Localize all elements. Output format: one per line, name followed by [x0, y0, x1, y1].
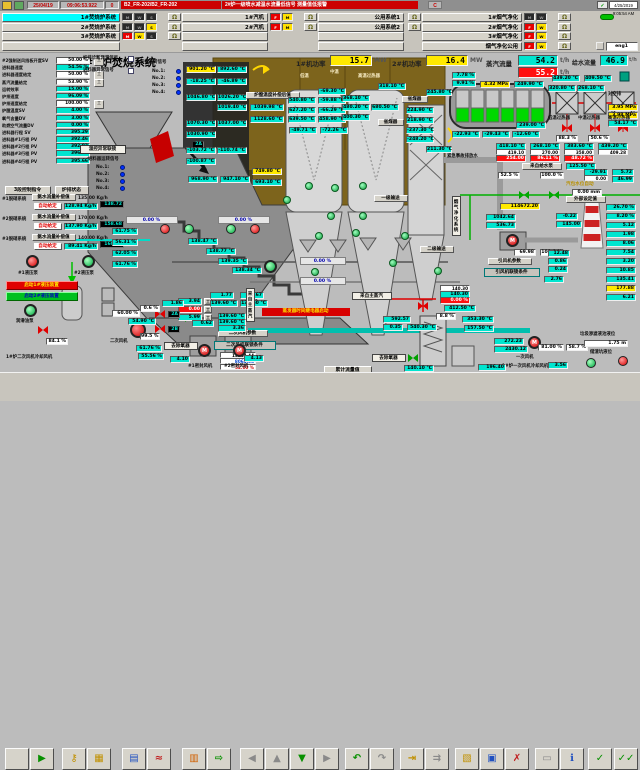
label: 高温过热器 [358, 74, 381, 81]
value-box: 211.30 ℃ [426, 146, 452, 153]
alarm-led: F [524, 32, 535, 40]
report-button[interactable]: ▤ [122, 748, 146, 770]
value-box: 4.10 [170, 356, 190, 363]
value-box: 1046.80 ℃ [186, 94, 216, 101]
parameter-row: 炉排速度给定 100.00 % 工 [2, 100, 112, 107]
value-box: 6.21 [606, 294, 636, 301]
bell-icon[interactable]: Ω [304, 23, 317, 31]
run-led [120, 179, 125, 184]
nav-1-fluegas[interactable]: 1#烟气净化 [422, 13, 522, 22]
value-box[interactable]: 0.6 % [140, 305, 160, 312]
app-icon[interactable] [2, 1, 12, 10]
delete-screen-button[interactable]: ✗ [505, 748, 529, 770]
value-box: 409.28 [598, 149, 628, 155]
parameter-label: 运转效率 [2, 87, 19, 93]
user-field[interactable]: eng1 [606, 42, 638, 51]
alarm-led: M [122, 23, 133, 31]
label: 汽包水位自动 [566, 182, 595, 189]
checkbox[interactable] [128, 56, 134, 62]
alarm-confirm-button[interactable]: ✓✓ [614, 748, 638, 770]
value-box: 540.30 ℃ [407, 324, 437, 331]
value-box: 3.36 [218, 325, 246, 332]
conveyor-label: 二级输送 [420, 246, 454, 253]
label-box: 氨水流量补偿值 [32, 194, 76, 201]
motor-icon[interactable] [305, 182, 313, 190]
pump-icon[interactable] [250, 224, 260, 234]
label: 二次风机 [110, 339, 128, 346]
value-box: 540.80 ℃ [288, 97, 316, 104]
alarm-led: W [134, 32, 145, 40]
alarm-message: 2#炉一级喷水减温水流量低信号 测量值低报警 [222, 1, 418, 9]
slider[interactable]: 0.00 % [218, 216, 270, 224]
run-led [176, 83, 181, 88]
alarm-led: W [536, 23, 547, 31]
label: #1液压泵 [18, 271, 38, 278]
nav-empty[interactable] [182, 42, 268, 51]
bell-icon[interactable]: Ω [168, 32, 181, 40]
parameter-row: 助燃空气流量DV 0.00 % [2, 122, 112, 129]
screen-forward-button[interactable]: ⇉ [425, 748, 449, 770]
value-box: 245.80 ℃ [426, 89, 452, 96]
value-box: 0.00 % [440, 297, 470, 304]
parameter-label: 进料器#1行程 PV [2, 137, 37, 143]
nav-2-turbine[interactable]: 2#汽机 [182, 23, 268, 32]
parameter-label: 氧气含量DV [2, 116, 25, 122]
label-box: 氨水流量补偿值 [32, 214, 76, 221]
nav-2-fluegas[interactable]: 2#烟气净化 [422, 23, 522, 32]
value-box: 480.20 ℃ [342, 104, 370, 111]
value-box: 1.77 [210, 292, 234, 299]
value-box: 968.90 ℃ [188, 176, 218, 183]
value-box: 1128.60 ℃ [250, 116, 284, 123]
value-box: -22.93 ℃ [452, 131, 480, 138]
value-box: 0.62 [192, 320, 214, 327]
value-box: 353.30 ℃ [462, 316, 494, 323]
value-box: 0.00 [584, 175, 608, 181]
value-box[interactable]: 81.00 % [538, 344, 564, 351]
value-box: 268.10 ℃ [577, 85, 605, 92]
value-box: 318.10 ℃ [378, 83, 406, 90]
value-box: 2430.12 [494, 346, 528, 353]
run-led [120, 165, 125, 170]
pump-icon[interactable] [226, 224, 236, 234]
flow-label: 来自给水泵 [522, 163, 562, 170]
motor-icon[interactable] [359, 182, 367, 190]
label: No.2: [152, 76, 165, 83]
value-box: -69.30 ℃ [318, 88, 346, 95]
alarm-led: W [134, 13, 145, 21]
parameter-label: 进料器速度给定 [2, 72, 31, 78]
label: No.4: [96, 186, 109, 193]
pump-icon[interactable] [24, 304, 37, 317]
value-box: 26.70 % [606, 204, 636, 211]
feed-flow-value: 46.9 [600, 55, 628, 66]
value-box: 4.32 MPa [480, 81, 510, 88]
parameter-row: 进料器行程 SV 395.29 [2, 129, 112, 136]
label: 润滑油泵 [16, 319, 34, 326]
value-box: 12.48 [548, 250, 570, 257]
label: No.3: [152, 83, 165, 90]
run-led [176, 76, 181, 81]
value-box: 1026.20 ℃ [217, 94, 247, 101]
label: 低温过热器 [548, 116, 570, 123]
bell-icon[interactable]: Ω [558, 42, 571, 50]
value-box: 5.12 [606, 222, 636, 229]
vertical-label: 来自主蒸汽 [246, 288, 255, 322]
parameter-value: 395.29 [56, 129, 90, 136]
label: 一次风机 [516, 355, 534, 362]
alarm-led: W [134, 23, 145, 31]
alarm-led: M [524, 13, 535, 21]
value-box: 368.10 ℃ [342, 95, 370, 102]
motor-icon[interactable] [389, 259, 397, 267]
parameter-label: 进料器#4行程 PV [2, 159, 37, 165]
value-box: 947.10 ℃ [220, 176, 250, 183]
idfan-interlock-button[interactable]: 引风机联锁条件 [484, 268, 540, 277]
run-led [176, 69, 181, 74]
parameter-value: 53.90 % [56, 79, 90, 86]
conveyor-label: 一级输送 [374, 195, 408, 202]
checkbox[interactable] [128, 68, 134, 74]
steam-flow-value: 54.2 [518, 55, 558, 66]
indicator-icon[interactable] [586, 358, 596, 368]
idfan-params-button[interactable]: 引风机参数 [488, 258, 532, 265]
value-box: 55.56 % [138, 353, 164, 360]
bell-icon[interactable]: Ω [168, 13, 181, 21]
bell-icon[interactable]: Ω [408, 23, 421, 31]
indicator-icon[interactable] [618, 356, 628, 366]
value-box: 61.76 % [136, 345, 162, 352]
user-icon [596, 42, 604, 50]
nav-1-turbine[interactable]: 1#汽机 [182, 13, 268, 22]
auto-setpoint-button[interactable]: 自动给定 [34, 243, 62, 250]
bell-icon[interactable]: Ω [558, 13, 571, 21]
value-box: -103.72 ℃ [186, 147, 216, 154]
alarm-banner: 蒸发器时间继电器启动 [262, 308, 350, 316]
value-box: 0.00 [178, 306, 202, 313]
blank-button[interactable] [5, 748, 29, 770]
parameter-label: 进料器#2行程 PV [2, 144, 37, 150]
value-box: 2.76 [544, 276, 564, 283]
label: No.4: [152, 90, 165, 97]
bell-icon[interactable]: Ω [304, 13, 317, 21]
value-box: -18.25 ℃ [186, 78, 216, 85]
parameter-row: 炉膛温度SV 4.00 % [2, 107, 112, 114]
tag-status-button[interactable]: ▥ [182, 748, 206, 770]
label: 低温 [300, 74, 310, 81]
value-box: 196.40 [478, 364, 506, 371]
run-led [120, 172, 125, 177]
flow-label: 来自主蒸汽 [352, 292, 392, 300]
alarm-count: 0 [105, 1, 119, 9]
nav-left-button[interactable]: ◀ [240, 748, 264, 770]
label: 中温 [330, 70, 340, 77]
flow-label: 去除氧器 [164, 342, 198, 350]
label: #2脱硝系统 [2, 217, 26, 224]
nav-right-button[interactable]: ▶ [315, 748, 339, 770]
bell-icon[interactable]: Ω [408, 13, 421, 21]
value-box: 3.20 [606, 258, 636, 265]
value-box[interactable]: 52.5 % [498, 172, 520, 179]
value-box: 61.75 % [112, 228, 138, 235]
refresh-icon[interactable] [14, 1, 24, 10]
value-box: 177.88 [606, 285, 636, 292]
trend-button[interactable]: ≈ [147, 748, 171, 770]
value-box: 158.68 [100, 221, 124, 228]
value-box[interactable]: 60.00 % [112, 310, 140, 317]
label: 炉排诊断异常信号 [83, 56, 118, 63]
parameter-label: 进料器行程 SV [2, 130, 31, 136]
parameter-label: 助燃空气流量DV [2, 123, 34, 129]
slider[interactable]: 0.00 % [300, 257, 346, 265]
parameter-row: 蒸汽流量给定 53.90 % 工 [2, 79, 112, 86]
metric-label: 给水流量 [572, 58, 596, 67]
nav-fluegas-common[interactable]: 烟气净化公用 [422, 42, 522, 51]
parameter-row: 进料器#1行程 PV 392.46 [2, 136, 112, 143]
value-box: -46.89 ℃ [217, 78, 247, 85]
nav-down-button[interactable]: ▼ [290, 748, 314, 770]
motor-icon[interactable] [315, 232, 323, 240]
parameter-label: 蒸汽流量给定 [2, 80, 27, 86]
label: 1#炉一次风机冷却风机 [502, 364, 548, 371]
ack-datetime: 4/25/2019 9:05:54 AM [609, 1, 638, 9]
value-box[interactable]: 69.98 [514, 249, 536, 256]
parameter-row: 氧气含量DV 3.00 % [2, 115, 112, 122]
value-box: 0.24 [548, 266, 568, 273]
value-box: 89.41 Kg/h [64, 243, 98, 250]
value-box: -0.22 [556, 213, 578, 220]
label: 储渣坑液位 [590, 350, 612, 357]
label: 进料器异常信号 [83, 68, 114, 75]
parameter-value: 392.46 [56, 136, 90, 143]
screen-transfer-button[interactable]: ⇨ [207, 748, 231, 770]
label: 高温过热器 [608, 116, 630, 123]
slider[interactable]: 0.00 % [300, 277, 346, 285]
parameter-value: 15.00 % [56, 86, 90, 93]
value-box: 48.72 % [564, 155, 594, 162]
pump-icon[interactable] [184, 224, 194, 234]
value-box: 1030.90 ℃ [186, 131, 216, 138]
pump-icon[interactable] [160, 224, 170, 234]
value-box: 224.90 ℃ [406, 107, 434, 114]
motor-icon[interactable] [401, 232, 409, 240]
value-box: 320.80 ℃ [548, 85, 576, 92]
nav-common-2[interactable]: 公用系统2 [318, 23, 404, 32]
value-box: -49.71 ℃ [289, 127, 317, 134]
value-box: -29.43 ℃ [482, 131, 510, 138]
metric-label: 2#机功率 [392, 58, 421, 68]
label-box: 省煤器 [378, 119, 404, 126]
value-box: 139.60 ℃ [210, 300, 238, 307]
value-box: 627.20 ℃ [288, 107, 316, 114]
value-box: -12.60 ℃ [512, 131, 540, 138]
flow-label: 去除氧器 [372, 354, 406, 362]
value-box: 536.73 [486, 222, 516, 229]
label: No.2: [96, 172, 109, 179]
nav-common-1[interactable]: 公用系统1 [318, 13, 404, 22]
nav-empty[interactable] [318, 32, 404, 41]
value-box: 249.90 ℃ [514, 81, 544, 88]
flow-label: 对空排 [608, 92, 634, 99]
runtime-start-button[interactable]: ▶ [30, 748, 54, 770]
pump-icon[interactable] [82, 255, 95, 268]
fan-icon[interactable]: M [198, 344, 211, 357]
value-box: 3.56 [548, 362, 568, 369]
label: #1脱硝系统 [2, 197, 26, 204]
value-box: 138.34 ℃ [232, 267, 262, 274]
motor-icon[interactable] [327, 212, 335, 220]
value-box: 138.72 [100, 201, 124, 208]
redo-button[interactable]: ↷ [370, 748, 394, 770]
value-box[interactable]: 50.6 % [588, 135, 610, 142]
value-box: 1019.40 ℃ [217, 104, 247, 111]
value-box[interactable]: 99.5 % [140, 333, 160, 340]
display-toggle-button[interactable]: ▭ [535, 748, 559, 770]
motor-icon[interactable] [359, 212, 367, 220]
value-box[interactable]: 84.1 % [46, 338, 68, 345]
value-box[interactable]: 100.0 % [540, 172, 564, 179]
auto-setpoint-button[interactable]: 自动给定 [34, 203, 62, 210]
motor-icon[interactable] [283, 196, 291, 204]
value-box: 62.05 % [112, 250, 138, 257]
value-box: 239.00 ℃ [516, 122, 546, 129]
value-box: 157.50 ℃ [464, 325, 494, 332]
label: No.1: [152, 69, 165, 76]
parameter-row: 运转效率 15.00 % [2, 86, 112, 93]
bell-icon[interactable]: Ω [558, 23, 571, 31]
bell-icon[interactable]: Ω [558, 32, 571, 40]
alarm-led: W [536, 13, 547, 21]
label: #1密封风机 [188, 364, 212, 371]
value-box: 1042.64 [486, 214, 516, 221]
label-box: 外部设定值 [566, 196, 606, 203]
tag: 2A [168, 311, 180, 318]
parameter-label: 进料器速度 [2, 65, 23, 71]
label: #2密封风机 [224, 364, 248, 371]
label: No.1: [96, 165, 109, 172]
undo-button[interactable]: ↶ [345, 748, 369, 770]
alarm-ack-button[interactable]: ✓ [588, 748, 612, 770]
value-box: -110.74 ℃ [217, 147, 247, 154]
nav-3-fluegas[interactable]: 3#烟气净化 [422, 32, 522, 41]
fan-icon[interactable]: M [506, 234, 519, 247]
metric-unit: MW [374, 57, 387, 64]
value-box: 218.90 ℃ [406, 117, 434, 124]
start-hydraulic-1-button[interactable]: 启动1#液压装置 [6, 281, 78, 290]
value-box: 639.50 ℃ [288, 116, 316, 123]
value-box: 10.85 [606, 267, 636, 274]
alarm-led: S [146, 32, 157, 40]
value-box: 46.99 [612, 176, 634, 183]
motor-icon[interactable] [311, 268, 319, 276]
graphics-screen-button[interactable]: ▦ [87, 748, 111, 770]
value-box: 5.72 [612, 169, 634, 176]
slider[interactable]: 0.00 % [126, 216, 178, 224]
nav-3-incinerator[interactable]: 3#焚烧炉系统 [2, 32, 120, 41]
value-box[interactable]: 8.8 % [436, 313, 456, 320]
value-box: 56.31 % [112, 239, 138, 246]
bell-icon[interactable]: Ω [168, 23, 181, 31]
alarm-led: W [536, 42, 547, 50]
metric-unit: t/h [560, 57, 569, 64]
alarm-led: M [282, 13, 293, 21]
label: 中温过热器 [578, 116, 600, 123]
alarm-flag: C [428, 1, 442, 9]
nav-empty[interactable] [2, 42, 120, 51]
parameter-value: 100.00 % [56, 100, 90, 107]
save-screen-button[interactable]: ▣ [480, 748, 504, 770]
value-box: 61.76 % [112, 261, 138, 268]
security-keys-button[interactable]: ⚷ [62, 748, 86, 770]
valve-icon[interactable] [264, 260, 277, 273]
parameter-label: #2强制送风挡板开度SV [2, 58, 48, 64]
value-box: 1.86 [162, 300, 184, 307]
value-box: 145.00 [556, 221, 582, 228]
value-box[interactable]: 88.3 % [556, 135, 578, 142]
value-box: -100.87 ℃ [186, 158, 216, 165]
value-box: 138.77 ℃ [206, 248, 236, 255]
nav-empty[interactable] [318, 42, 404, 51]
value-box: 7.78 % [452, 72, 476, 79]
label: No.3: [96, 179, 109, 186]
motor-icon[interactable] [331, 184, 339, 192]
open-screen-button[interactable]: ▧ [455, 748, 479, 770]
label: #2液压泵 [74, 271, 94, 278]
value-box: 8.20 % [606, 213, 636, 220]
value-box: 139.35 ℃ [218, 258, 248, 265]
value-box: -237.30 ℃ [406, 127, 434, 134]
alarm-led: S [146, 23, 157, 31]
label: #3脱硝系统 [2, 237, 26, 244]
value-box: 409.50 ℃ [584, 75, 612, 82]
value-box: 901.20 ℃ [186, 66, 216, 73]
alarm-led: F [270, 23, 281, 31]
value-box: 140.10 ℃ [404, 365, 434, 372]
metric-label: 1#机功率 [296, 58, 325, 68]
nav-2-incinerator[interactable]: 2#焚烧炉系统 [2, 23, 120, 32]
value-box: 137.90 Kg/h [64, 223, 98, 230]
parameter-row: 炉排速度 96.09 % [2, 93, 112, 100]
ack-check-icon[interactable]: ✓ [597, 1, 608, 9]
alarm-led: M [122, 32, 133, 40]
motor-icon[interactable] [352, 229, 360, 237]
info-button[interactable]: ℹ [560, 748, 584, 770]
value-box: 54.90 ℃ [128, 318, 156, 325]
nav-empty[interactable] [182, 32, 268, 41]
alarm-led: M [282, 23, 293, 31]
screen-jump-button[interactable]: ⇥ [400, 748, 424, 770]
value-box: -248.20 ℃ [406, 136, 434, 143]
metric-unit: t/h [629, 57, 637, 63]
pump-icon[interactable] [26, 255, 39, 268]
motor-icon[interactable] [434, 267, 442, 275]
run-led [120, 186, 125, 191]
power-1-value: 15.7 [330, 55, 372, 66]
value-box: 749.80 ℃ [252, 168, 282, 175]
edit-button[interactable]: 工 [204, 306, 212, 313]
value-box: 412.50 ℃ [444, 305, 476, 312]
label: 进料器运转信号 [88, 157, 119, 164]
nav-up-button[interactable]: ▲ [265, 748, 289, 770]
nav-1-incinerator[interactable]: 1#焚烧炉系统 [2, 13, 120, 22]
start-hydraulic-2-button[interactable]: 启动2#液压装置 [6, 292, 78, 301]
alarm-led: W [536, 32, 547, 40]
parameter-value: 395.66 [56, 158, 90, 165]
auto-setpoint-button[interactable]: 自动给定 [34, 223, 62, 230]
value-box: 128.94 Kg/h [64, 203, 98, 210]
value-box: 439.20 ℃ [552, 75, 580, 82]
value-box: 0.35 [383, 324, 403, 331]
